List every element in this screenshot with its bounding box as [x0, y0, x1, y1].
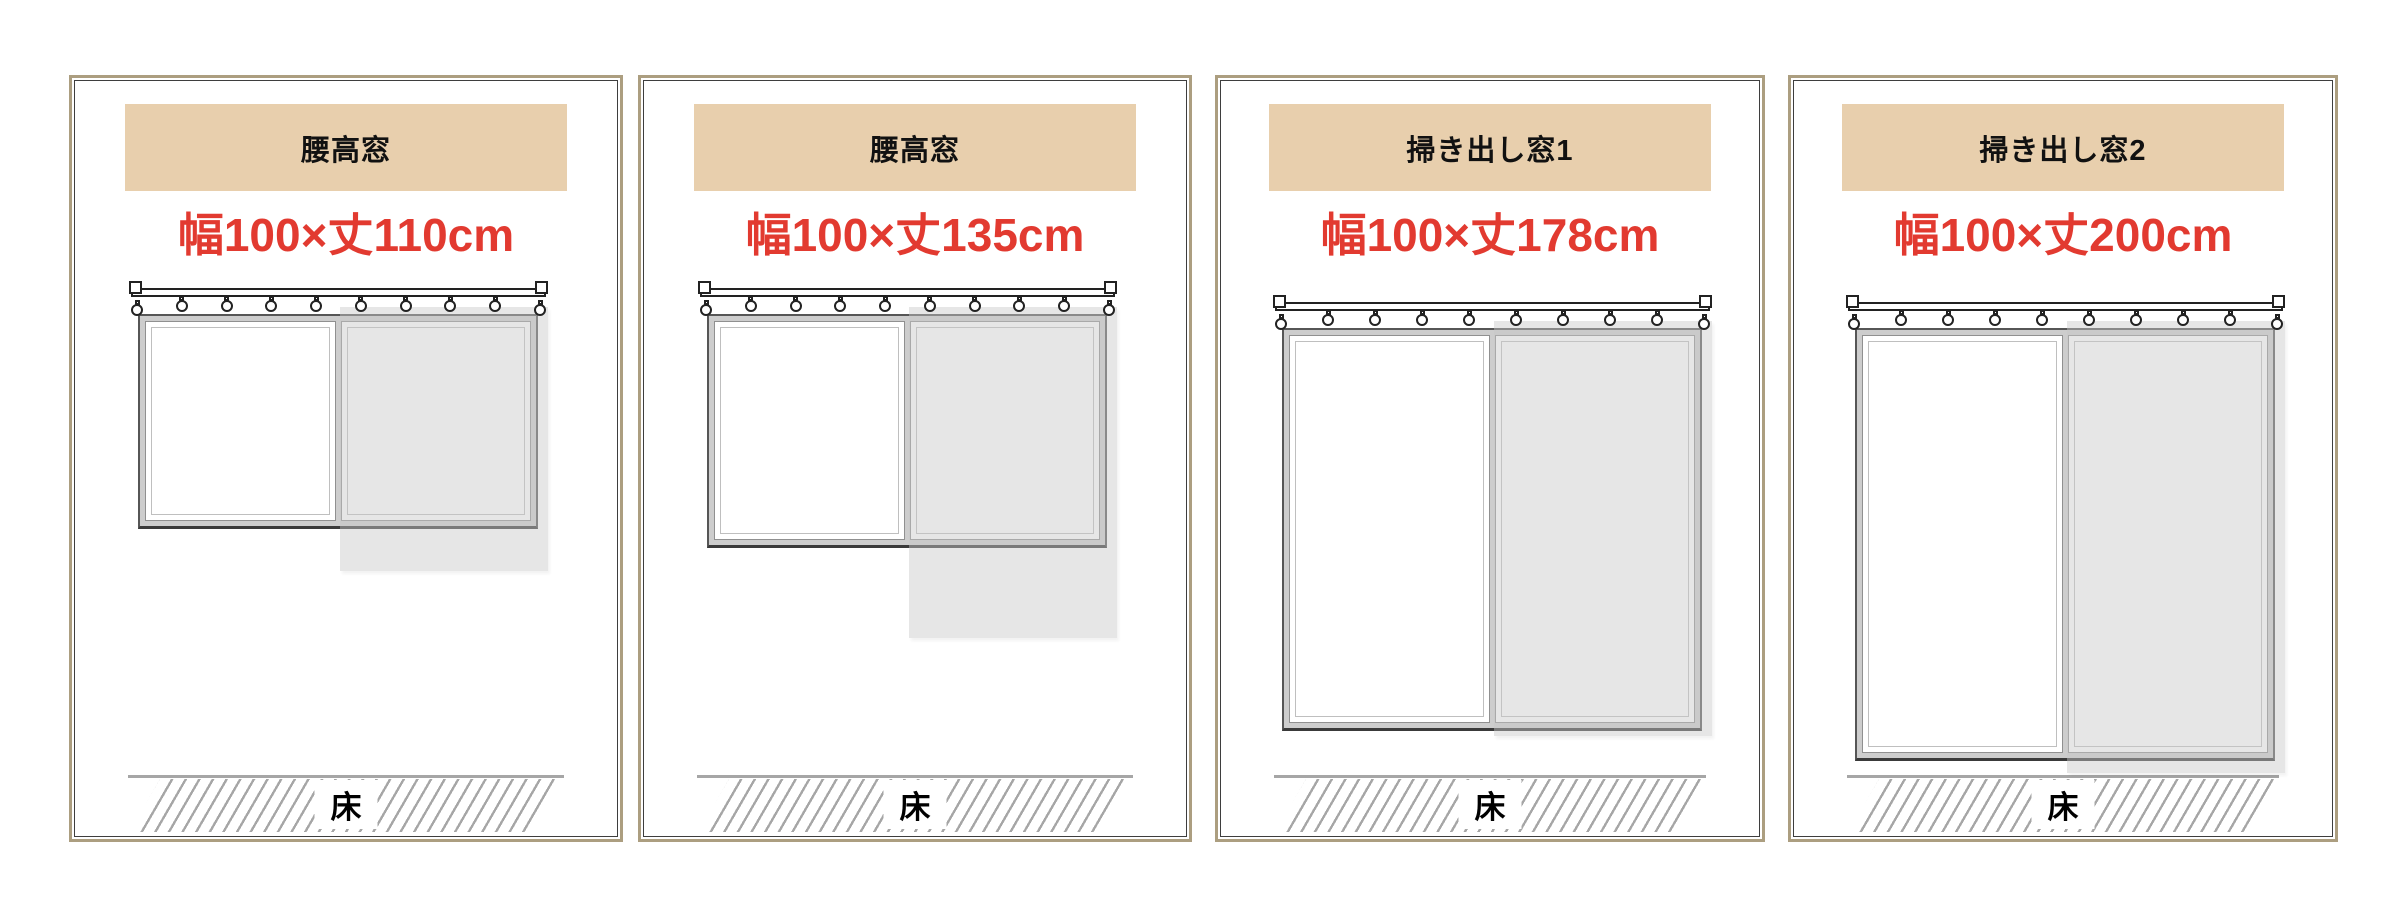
curtain-ring-icon: [969, 296, 981, 312]
infographic-canvas: 腰高窓幅100×丈110cm床腰高窓幅100×丈135cm床掃き出し窓1幅100…: [0, 0, 2400, 900]
curtain-ring-icon: [2271, 314, 2283, 330]
curtain-ring-icon: [1557, 310, 1569, 326]
ring-loop: [700, 304, 712, 316]
curtain-ring-icon: [1604, 310, 1616, 326]
curtain-rail-end-cap-left: [1273, 295, 1286, 308]
ring-loop: [2177, 314, 2189, 326]
window-panel: 掃き出し窓2幅100×丈200cm床: [1788, 75, 2338, 842]
curtain-ring-icon: [1698, 314, 1710, 330]
ring-loop: [1651, 314, 1663, 326]
curtain-ring-icon: [310, 296, 322, 312]
curtain-ring-icon: [1416, 310, 1428, 326]
curtain-ring-icon: [444, 296, 456, 312]
curtain-rail-end-cap-right: [1104, 281, 1117, 294]
curtain-rail-bar: [131, 288, 546, 297]
ring-loop: [834, 300, 846, 312]
curtain-ring-icon: [355, 296, 367, 312]
ring-loop: [969, 300, 981, 312]
panel-header: 掃き出し窓1: [1269, 104, 1711, 191]
curtain-ring-icon: [1103, 300, 1115, 316]
curtain-ring-icon: [131, 300, 143, 316]
curtain-ring-icon: [834, 296, 846, 312]
curtain-ring-icon: [1058, 296, 1070, 312]
panel-header-label: 掃き出し窓2: [1979, 127, 2146, 169]
ring-loop: [1698, 318, 1710, 330]
curtain-rail-end-cap-left: [1846, 295, 1859, 308]
curtain-rail-end-cap-right: [1699, 295, 1712, 308]
ring-loop: [879, 300, 891, 312]
floor-line: [697, 775, 1133, 778]
window-pane-left: [145, 321, 336, 521]
ring-loop: [1058, 300, 1070, 312]
curtain-ring-icon: [1848, 314, 1860, 330]
curtain-ring-icon: [700, 300, 712, 316]
ring-loop: [1013, 300, 1025, 312]
ring-loop: [2083, 314, 2095, 326]
curtain-ring-icon: [2036, 310, 2048, 326]
floor-label: 床: [315, 780, 378, 829]
ring-loop: [1989, 314, 2001, 326]
curtain-ring-icon: [745, 296, 757, 312]
curtain-rail-bar: [700, 288, 1115, 297]
window-panel: 腰高窓幅100×丈110cm床: [69, 75, 623, 842]
ring-loop: [221, 300, 233, 312]
window-pane-left: [1289, 335, 1490, 723]
ring-loop: [355, 300, 367, 312]
curtain-ring-icon: [2130, 310, 2142, 326]
floor-line: [128, 775, 564, 778]
curtain-ring-icon: [176, 296, 188, 312]
curtain-rail-end-cap-right: [2272, 295, 2285, 308]
ring-loop: [924, 300, 936, 312]
curtain-rail-bar: [1848, 302, 2283, 311]
ring-loop: [2224, 314, 2236, 326]
curtain-panel: [909, 307, 1117, 638]
ring-loop: [176, 300, 188, 312]
ring-loop: [1275, 318, 1287, 330]
curtain-ring-icon: [1651, 310, 1663, 326]
window-pane-left: [714, 321, 905, 540]
curtain-rail-end-cap-left: [129, 281, 142, 294]
floor-line: [1847, 775, 2279, 778]
floor-label: 床: [884, 780, 947, 829]
curtain-rail-end-cap-left: [698, 281, 711, 294]
panel-header: 腰高窓: [694, 104, 1136, 191]
ring-loop: [1557, 314, 1569, 326]
panel-header-label: 掃き出し窓1: [1406, 127, 1573, 169]
curtain-ring-icon: [265, 296, 277, 312]
ring-loop: [1463, 314, 1475, 326]
curtain-ring-icon: [2177, 310, 2189, 326]
ring-loop: [790, 300, 802, 312]
ring-loop: [1322, 314, 1334, 326]
curtain-ring-icon: [1463, 310, 1475, 326]
curtain-ring-icon: [489, 296, 501, 312]
ring-loop: [1604, 314, 1616, 326]
ring-loop: [2130, 314, 2142, 326]
ring-loop: [400, 300, 412, 312]
ring-loop: [1510, 314, 1522, 326]
curtain-ring-icon: [924, 296, 936, 312]
curtain-ring-icon: [221, 296, 233, 312]
panel-header: 腰高窓: [125, 104, 567, 191]
ring-loop: [1942, 314, 1954, 326]
curtain-ring-icon: [400, 296, 412, 312]
ring-loop: [1895, 314, 1907, 326]
curtain-ring-icon: [2224, 310, 2236, 326]
curtain-ring-icon: [1322, 310, 1334, 326]
window-panel: 掃き出し窓1幅100×丈178cm床: [1215, 75, 1765, 842]
panel-header-label: 腰高窓: [301, 127, 391, 169]
curtain-rail: [700, 281, 1115, 321]
curtain-ring-icon: [1013, 296, 1025, 312]
panel-header-label: 腰高窓: [870, 127, 960, 169]
curtain-rail-end-cap-right: [535, 281, 548, 294]
ring-loop: [1103, 304, 1115, 316]
ring-loop: [1369, 314, 1381, 326]
curtain-ring-icon: [1942, 310, 1954, 326]
curtain-rail-bar: [1275, 302, 1710, 311]
curtain-ring-icon: [879, 296, 891, 312]
ring-loop: [745, 300, 757, 312]
curtain-ring-icon: [2083, 310, 2095, 326]
curtain-ring-icon: [1275, 314, 1287, 330]
curtain-ring-icon: [790, 296, 802, 312]
curtain-ring-icon: [1895, 310, 1907, 326]
ring-loop: [265, 300, 277, 312]
ring-loop: [1848, 318, 1860, 330]
curtain-rail: [131, 281, 546, 321]
curtain-ring-icon: [1369, 310, 1381, 326]
curtain-size-label: 幅100×丈200cm: [1791, 209, 2335, 261]
curtain-ring-icon: [1989, 310, 2001, 326]
ring-loop: [2271, 318, 2283, 330]
ring-loop: [444, 300, 456, 312]
curtain-panel: [1494, 321, 1712, 736]
curtain-rail: [1848, 295, 2283, 335]
curtain-panel: [340, 307, 548, 571]
curtain-size-label: 幅100×丈135cm: [641, 209, 1189, 261]
window-panel: 腰高窓幅100×丈135cm床: [638, 75, 1192, 842]
ring-loop: [131, 304, 143, 316]
window-pane-left: [1862, 335, 2063, 753]
ring-loop: [2036, 314, 2048, 326]
curtain-panel: [2067, 321, 2285, 773]
curtain-ring-icon: [1510, 310, 1522, 326]
ring-loop: [489, 300, 501, 312]
curtain-rail: [1275, 295, 1710, 335]
panel-header: 掃き出し窓2: [1842, 104, 2284, 191]
curtain-size-label: 幅100×丈110cm: [72, 209, 620, 261]
ring-loop: [1416, 314, 1428, 326]
curtain-size-label: 幅100×丈178cm: [1218, 209, 1762, 261]
floor-label: 床: [2032, 780, 2095, 829]
floor-line: [1274, 775, 1706, 778]
curtain-ring-icon: [534, 300, 546, 316]
ring-loop: [534, 304, 546, 316]
ring-loop: [310, 300, 322, 312]
floor-label: 床: [1459, 780, 1522, 829]
